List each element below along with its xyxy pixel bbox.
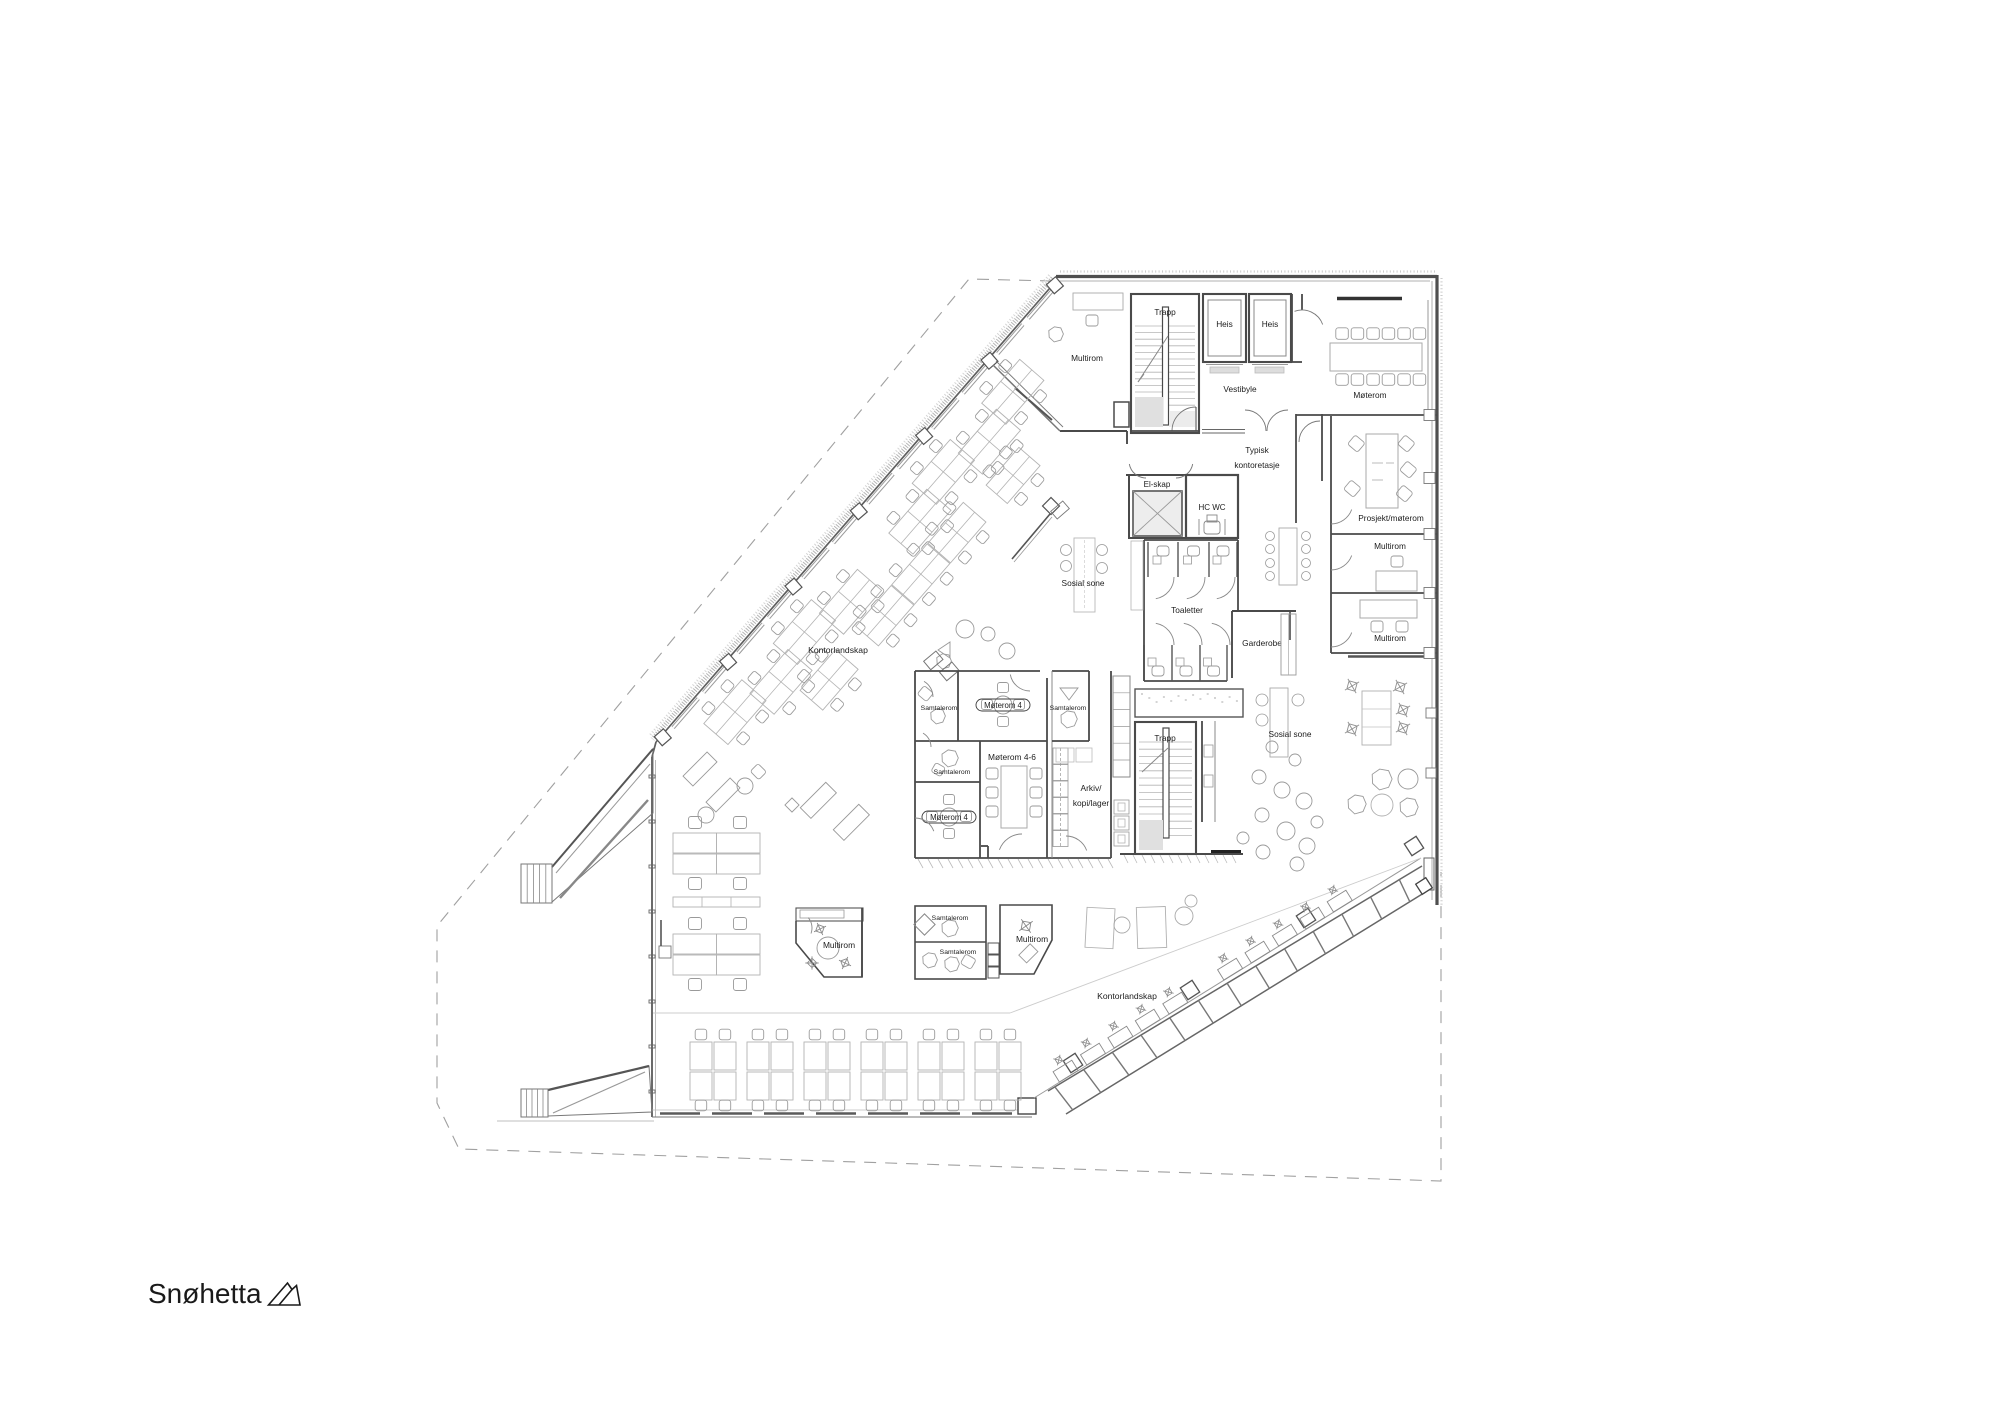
svg-text:Garderobe: Garderobe xyxy=(1242,638,1282,648)
svg-text:Vestibyle: Vestibyle xyxy=(1223,384,1257,394)
svg-text:kontoretasje: kontoretasje xyxy=(1234,460,1280,470)
svg-text:kopi/lager: kopi/lager xyxy=(1073,798,1110,808)
svg-text:Trapp: Trapp xyxy=(1154,733,1176,743)
svg-text:Heis: Heis xyxy=(1216,319,1233,329)
svg-text:Møterom 4: Møterom 4 xyxy=(984,701,1022,710)
svg-text:Sosial sone: Sosial sone xyxy=(1269,729,1312,739)
svg-text:Samtalerom: Samtalerom xyxy=(921,705,958,712)
svg-text:Prosjekt/møterom: Prosjekt/møterom xyxy=(1358,513,1424,523)
svg-text:Snøhetta: Snøhetta xyxy=(148,1278,262,1309)
svg-text:Samtalerom: Samtalerom xyxy=(934,769,971,776)
svg-text:HC WC: HC WC xyxy=(1198,503,1225,512)
svg-text:Kontorlandskap: Kontorlandskap xyxy=(808,645,868,655)
svg-text:Multirom: Multirom xyxy=(1374,541,1406,551)
svg-text:Samtalerom: Samtalerom xyxy=(1050,705,1087,712)
svg-text:Multirom: Multirom xyxy=(1374,633,1406,643)
svg-text:Typisk: Typisk xyxy=(1245,445,1269,455)
svg-text:Toaletter: Toaletter xyxy=(1171,605,1203,615)
svg-text:Heis: Heis xyxy=(1262,319,1279,329)
svg-text:Multirom: Multirom xyxy=(823,940,855,950)
svg-text:Arkiv/: Arkiv/ xyxy=(1081,783,1103,793)
svg-text:Samtalerom: Samtalerom xyxy=(940,949,977,956)
svg-text:Samtalerom: Samtalerom xyxy=(932,915,969,922)
svg-text:El-skap: El-skap xyxy=(1144,480,1171,489)
svg-text:Møterom 4-6: Møterom 4-6 xyxy=(988,752,1036,762)
svg-text:Møterom: Møterom xyxy=(1353,390,1386,400)
svg-text:Kontorlandskap: Kontorlandskap xyxy=(1097,991,1157,1001)
svg-text:Multirom: Multirom xyxy=(1016,934,1048,944)
svg-text:Sosial sone: Sosial sone xyxy=(1062,578,1105,588)
svg-text:Møterom 4: Møterom 4 xyxy=(930,813,968,822)
svg-text:Multirom: Multirom xyxy=(1071,353,1103,363)
svg-text:Trapp: Trapp xyxy=(1154,307,1176,317)
